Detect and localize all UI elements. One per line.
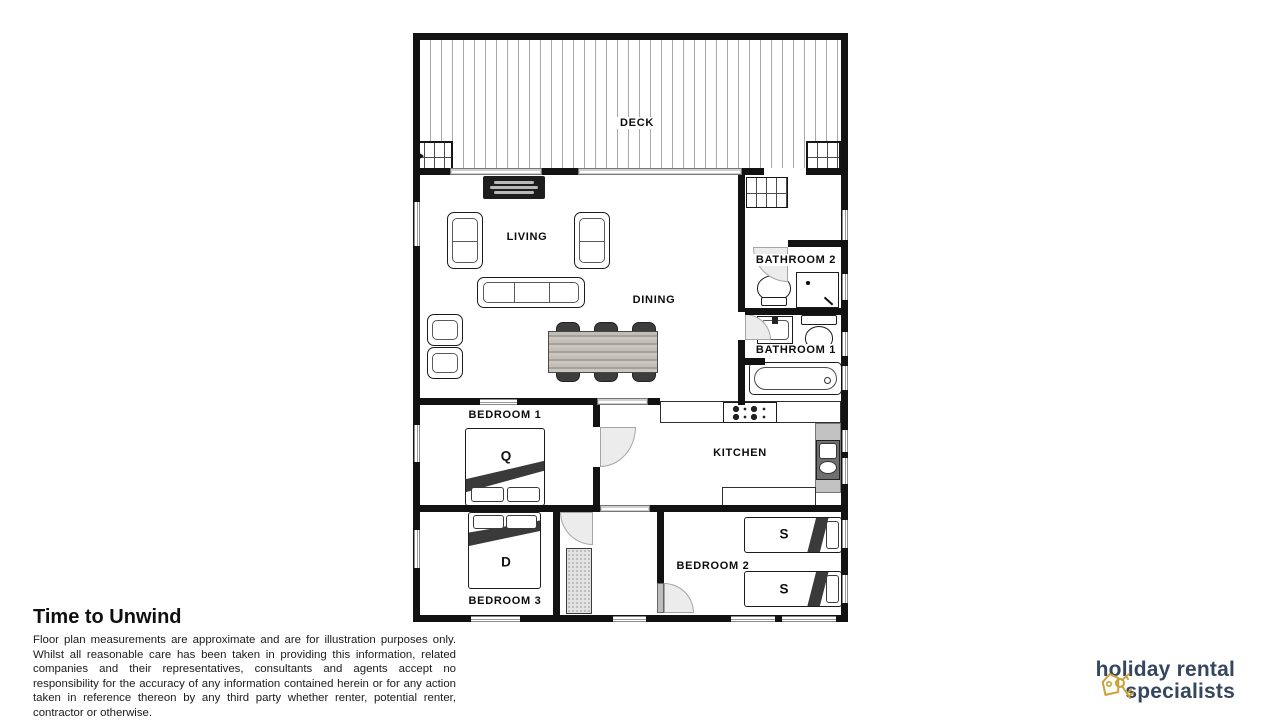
wall-segment (806, 168, 841, 175)
bed-size-label: S (779, 527, 788, 542)
single-bed (744, 571, 842, 607)
window (471, 616, 520, 622)
window (842, 575, 848, 603)
side-chair (427, 347, 463, 379)
window (613, 616, 646, 622)
disclaimer-text: Floor plan measurements are approximate … (33, 633, 456, 721)
armchair (447, 212, 483, 269)
shower (796, 272, 839, 308)
cased-opening (600, 505, 650, 512)
property-title: Time to Unwind (33, 606, 182, 629)
window (414, 425, 420, 462)
wall-segment (648, 398, 660, 405)
window (842, 430, 848, 452)
window (842, 458, 848, 484)
wall-segment (413, 505, 600, 512)
stove-cooktop (723, 402, 777, 423)
double-bed (468, 512, 541, 589)
kitchen-sink (816, 440, 840, 480)
wall-segment (413, 33, 848, 40)
dining-table (548, 331, 658, 373)
room-label-bedroom-2: BEDROOM 2 (674, 560, 753, 572)
bed-size-label: S (779, 582, 788, 597)
room-label-deck: DECK (617, 117, 657, 129)
deck-planks (420, 40, 841, 168)
room-label-kitchen: KITCHEN (710, 447, 770, 459)
cased-opening (597, 398, 648, 405)
bed-size-label: D (501, 555, 511, 570)
window (842, 520, 848, 548)
bathtub (749, 362, 842, 395)
wall-segment (593, 405, 600, 427)
wall-segment (788, 240, 841, 247)
wall-segment (738, 175, 745, 312)
window (414, 202, 420, 246)
wall-segment (745, 358, 765, 365)
wall-segment (657, 512, 664, 583)
room-label-living: LIVING (504, 231, 551, 243)
key-tag-icon (1095, 667, 1137, 707)
room-label-bathroom-2: BATHROOM 2 (753, 254, 839, 266)
window (842, 210, 848, 240)
window (842, 366, 848, 390)
wall-segment (593, 467, 600, 505)
interior-stairs (746, 177, 788, 208)
brand-logo: holiday rental specialists (1083, 659, 1235, 702)
sliding-door (450, 168, 542, 175)
wall-segment (553, 512, 560, 615)
door-arc-bedroom-3 (560, 512, 593, 545)
sliding-door (578, 168, 742, 175)
queen-bed (465, 428, 545, 506)
wall-segment (542, 168, 578, 175)
toilet-tank (801, 315, 837, 325)
window (782, 616, 836, 622)
door-leaf (657, 583, 664, 613)
closet (566, 548, 592, 614)
room-label-bedroom-3: BEDROOM 3 (466, 595, 545, 607)
bed-size-label: Q (501, 449, 512, 464)
floor-plan: DECK LIVING DINING BATHROOM 2 BATHROOM 1… (0, 0, 1280, 720)
window (731, 616, 775, 622)
armchair (574, 212, 610, 269)
fireplace (483, 176, 545, 199)
window (842, 332, 848, 356)
wall-segment (738, 340, 745, 405)
room-label-bathroom-1: BATHROOM 1 (753, 344, 839, 356)
wall-segment (742, 168, 764, 175)
door-arc-bedroom-2 (664, 583, 694, 613)
wall-segment (413, 168, 450, 175)
door-arc-bedroom-1 (600, 427, 636, 467)
window (480, 399, 517, 405)
wall-segment (650, 505, 841, 512)
window (842, 274, 848, 300)
side-chair (427, 314, 463, 346)
room-label-dining: DINING (630, 294, 679, 306)
sofa (477, 277, 585, 308)
single-bed (744, 517, 842, 553)
window (414, 530, 420, 568)
toilet-base (761, 297, 787, 306)
room-label-bedroom-1: BEDROOM 1 (466, 409, 545, 421)
wall-segment (745, 308, 841, 315)
